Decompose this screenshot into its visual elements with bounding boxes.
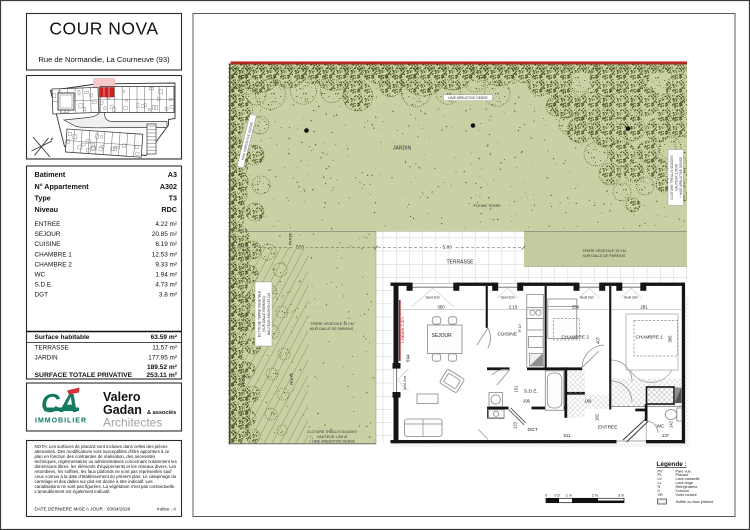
svg-text:N° Appartement: N° Appartement <box>35 182 90 191</box>
svg-text:HAIE ARBUSTIVE DENSE: HAIE ARBUSTIVE DENSE <box>448 96 488 100</box>
svg-text:JARDIN: JARDIN <box>35 355 58 362</box>
svg-text:281: 281 <box>640 304 648 309</box>
svg-text:9.33 m²: 9.33 m² <box>155 261 177 268</box>
svg-text:Niveau: Niveau <box>35 205 59 214</box>
svg-text:350: 350 <box>437 304 445 309</box>
svg-text:SURFACE TOTALE PRIVATIVE: SURFACE TOTALE PRIVATIVE <box>35 372 133 379</box>
svg-text:HAUTEUR 1,5M Ø: HAUTEUR 1,5M Ø <box>317 435 347 439</box>
svg-text:S.D.E.: S.D.E. <box>35 282 54 289</box>
svg-text:CUISINE: CUISINE <box>35 241 61 248</box>
svg-text:296: 296 <box>523 399 531 404</box>
svg-text:DGT: DGT <box>528 427 538 433</box>
svg-text:R LV: R LV <box>518 324 522 332</box>
svg-text:Linéaire 2.4m: Linéaire 2.4m <box>400 317 405 343</box>
svg-text:TERRE VEGETALE 15 CM: TERRE VEGETALE 15 CM <box>310 322 353 326</box>
svg-text:DGT: DGT <box>35 292 49 299</box>
svg-text:Batiment: Batiment <box>35 170 66 179</box>
svg-text:0.5: 0.5 <box>554 493 559 497</box>
svg-text:Seuil 2cm: Seuil 2cm <box>426 296 440 300</box>
svg-text:WC: WC <box>35 272 46 279</box>
svg-text:+ HAIE ARBUSTIVE DENSE: + HAIE ARBUSTIVE DENSE <box>309 440 356 444</box>
svg-text:CUISINE: CUISINE <box>498 332 517 338</box>
svg-text:A302: A302 <box>160 182 177 191</box>
svg-text:3 m: 3 m <box>618 493 624 497</box>
svg-text:TERRASSE: TERRASSE <box>35 345 69 352</box>
svg-text:PENTE: PENTE <box>289 232 293 245</box>
svg-text:169: 169 <box>585 399 593 404</box>
svg-text:COUR NOVA: COUR NOVA <box>49 19 158 39</box>
svg-text:151: 151 <box>514 385 519 393</box>
svg-text:CLOTURE TREILLIS SOUDES: CLOTURE TREILLIS SOUDES <box>307 430 357 434</box>
svg-text:250: 250 <box>572 304 580 309</box>
svg-text:142: 142 <box>669 420 674 428</box>
svg-text:407: 407 <box>596 336 601 344</box>
svg-text:Rue de Normandie, La Courneuve: Rue de Normandie, La Courneuve (93) <box>38 55 170 64</box>
svg-text:ENTREE: ENTREE <box>598 425 617 431</box>
svg-text:S.D.E.: S.D.E. <box>524 389 538 395</box>
svg-text:4.22 m²: 4.22 m² <box>155 221 177 228</box>
svg-text:T3: T3 <box>169 194 177 203</box>
svg-text:WC: WC <box>657 424 666 430</box>
svg-text:PLEINE TERRE: PLEINE TERRE <box>474 204 502 208</box>
svg-text:Type: Type <box>35 194 51 203</box>
svg-text:A3: A3 <box>168 170 177 179</box>
svg-text:12.53 m²: 12.53 m² <box>152 251 177 258</box>
svg-text:Volet roulant: Volet roulant <box>676 493 698 497</box>
svg-text:PENTE: PENTE <box>290 372 294 385</box>
svg-text:137: 137 <box>662 433 670 438</box>
svg-text:611: 611 <box>564 433 572 438</box>
svg-text:2 m: 2 m <box>592 493 598 497</box>
svg-text:TERRE VEGETALE 15 CM: TERRE VEGETALE 15 CM <box>582 249 625 253</box>
svg-text:BUTTE DE TERRE VEGETALE: BUTTE DE TERRE VEGETALE <box>258 290 262 337</box>
svg-text:ENTREE: ENTREE <box>35 221 61 228</box>
svg-text:2.15: 2.15 <box>509 304 518 309</box>
svg-text:Surface habitable: Surface habitable <box>35 334 90 341</box>
svg-text:Seuil 2cm: Seuil 2cm <box>501 296 515 300</box>
svg-text:1.94 m²: 1.94 m² <box>155 272 177 279</box>
svg-text:Architectes: Architectes <box>103 416 162 430</box>
svg-text:+ HAIE ARBUSTIVE DENSE: + HAIE ARBUSTIVE DENSE <box>679 157 683 198</box>
svg-text:CHAMBRE 2: CHAMBRE 2 <box>562 335 590 340</box>
svg-text:5.89: 5.89 <box>443 244 453 250</box>
svg-text:SEJOUR: SEJOUR <box>432 333 453 339</box>
svg-text:Indice : A: Indice : A <box>157 507 177 512</box>
svg-text:123: 123 <box>513 421 518 429</box>
svg-text:570: 570 <box>296 244 304 250</box>
svg-text:189.52 m²: 189.52 m² <box>147 364 178 371</box>
svg-text:PENTE: PENTE <box>242 373 246 386</box>
svg-text:CLOTURE TREILLIS SOUDES: CLOTURE TREILLIS SOUDES <box>670 155 674 199</box>
svg-text:SEJOUR: SEJOUR <box>35 231 61 238</box>
svg-text:182: 182 <box>595 413 600 421</box>
svg-text:(SUR DALLE PARKING): (SUR DALLE PARKING) <box>262 296 266 332</box>
svg-text:Légende :: Légende : <box>657 461 687 468</box>
svg-text:1 m: 1 m <box>566 493 572 497</box>
svg-text:SUR DALLE DE PARKING: SUR DALLE DE PARKING <box>583 254 626 258</box>
svg-text:Soffite ou faux plafond: Soffite ou faux plafond <box>676 500 714 504</box>
svg-text:JARDIN: JARDIN <box>393 146 411 152</box>
svg-text:DATE DERNIERE MISE A JOUR : 03: DATE DERNIERE MISE A JOUR : 03/04/2026 <box>35 507 131 512</box>
svg-text:253.11 m²: 253.11 m² <box>146 372 177 379</box>
svg-text:3.8 m²: 3.8 m² <box>159 292 177 299</box>
svg-text:0: 0 <box>545 493 547 497</box>
svg-text:TERRASSE: TERRASSE <box>447 260 475 266</box>
svg-text:4.73 m²: 4.73 m² <box>155 282 177 289</box>
svg-text:63.59 m²: 63.59 m² <box>151 334 178 341</box>
svg-text:L'ameublement est également in: L'ameublement est également indicatif. <box>35 489 111 494</box>
svg-text:SUR DALLE DE PARKING: SUR DALLE DE PARKING <box>311 327 354 331</box>
svg-text:CHAMBRE 1: CHAMBRE 1 <box>636 335 664 340</box>
svg-text:177.95 m²: 177.95 m² <box>148 355 177 362</box>
svg-text:CHAMBRE 1: CHAMBRE 1 <box>35 251 73 258</box>
svg-text:HAUTEUR ENVIRON 80 CM: HAUTEUR ENVIRON 80 CM <box>267 292 271 335</box>
svg-text:20.85 m²: 20.85 m² <box>152 231 177 238</box>
svg-text:Valero: Valero <box>103 390 141 404</box>
svg-text:CHAMBRE 2: CHAMBRE 2 <box>35 261 73 268</box>
svg-text:RDC: RDC <box>161 205 177 214</box>
svg-text:365: 365 <box>668 335 673 343</box>
svg-text:Seuil 2cm: Seuil 2cm <box>580 296 594 300</box>
svg-text:IMMOBILIER: IMMOBILIER <box>35 418 87 425</box>
svg-text:VR: VR <box>658 493 664 497</box>
svg-text:Seuil 2cm: Seuil 2cm <box>403 376 407 390</box>
svg-text:11.57 m²: 11.57 m² <box>152 345 177 352</box>
svg-text:Seuil 2cm: Seuil 2cm <box>624 296 638 300</box>
svg-text:594: 594 <box>406 354 411 362</box>
svg-text:6.19 m²: 6.19 m² <box>155 241 177 248</box>
svg-text:HAUTEUR 1,5M Ø: HAUTEUR 1,5M Ø <box>675 164 679 191</box>
